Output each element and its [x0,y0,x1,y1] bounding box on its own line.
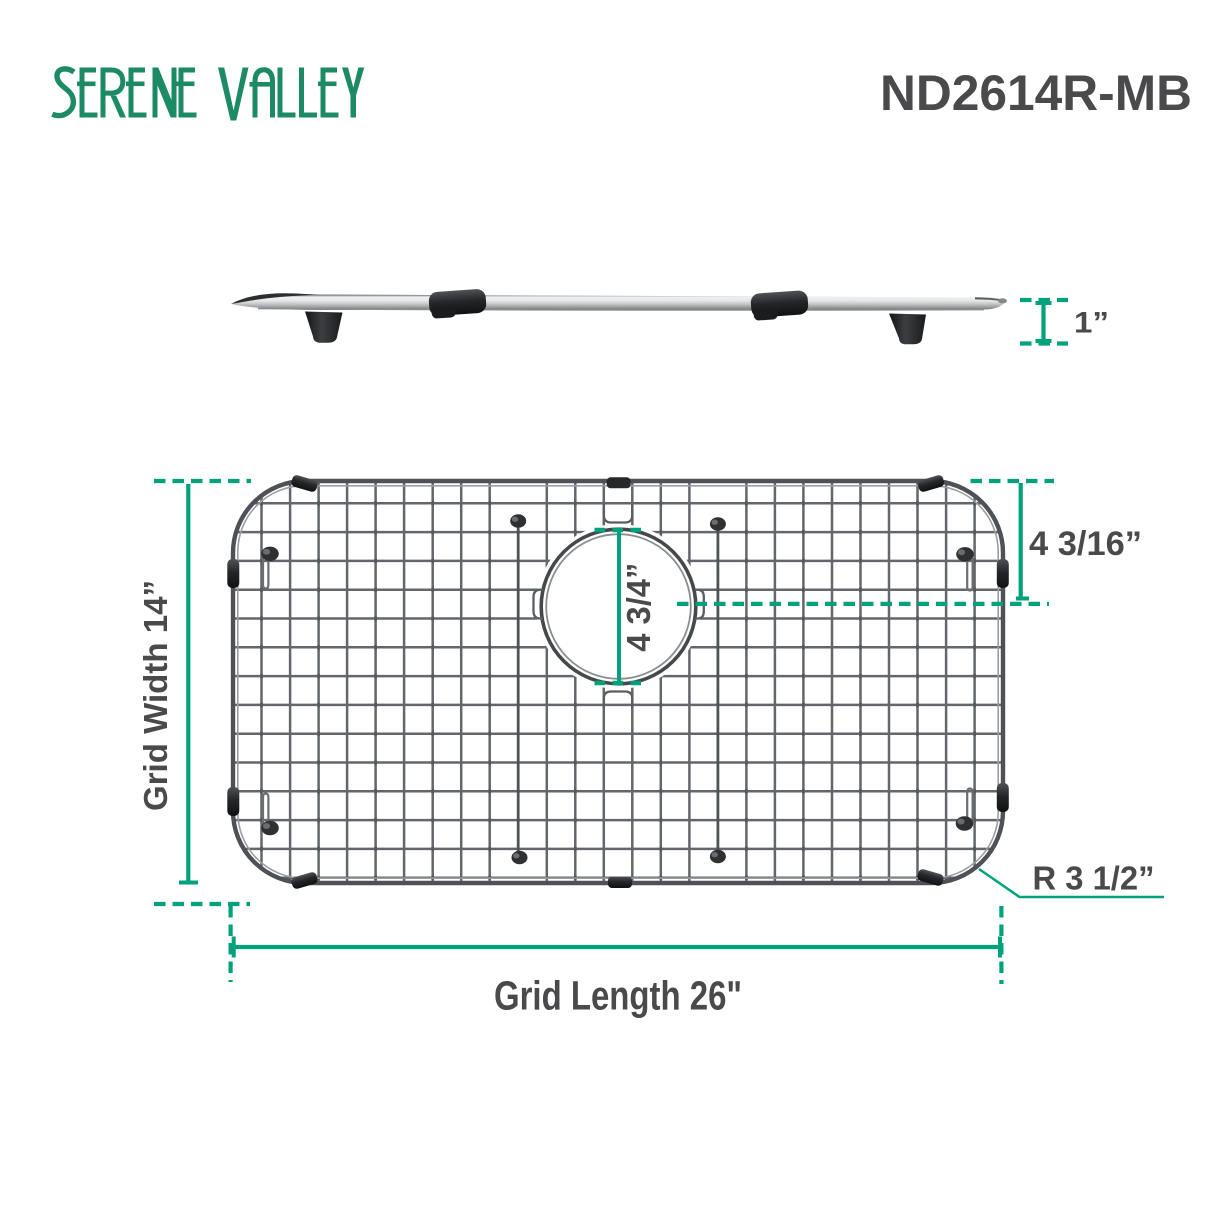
svg-text:ND2614R-MB: ND2614R-MB [880,65,1192,121]
svg-text:1”: 1” [1074,307,1109,340]
svg-text:4 3/4”: 4 3/4” [620,563,657,652]
svg-text:4 3/16”: 4 3/16” [1029,525,1142,563]
svg-text:R 3 1/2”: R 3 1/2” [1033,860,1155,897]
svg-text:Grid Width 14”: Grid Width 14” [137,580,174,811]
svg-text:Grid Length 26": Grid Length 26" [494,973,742,1019]
